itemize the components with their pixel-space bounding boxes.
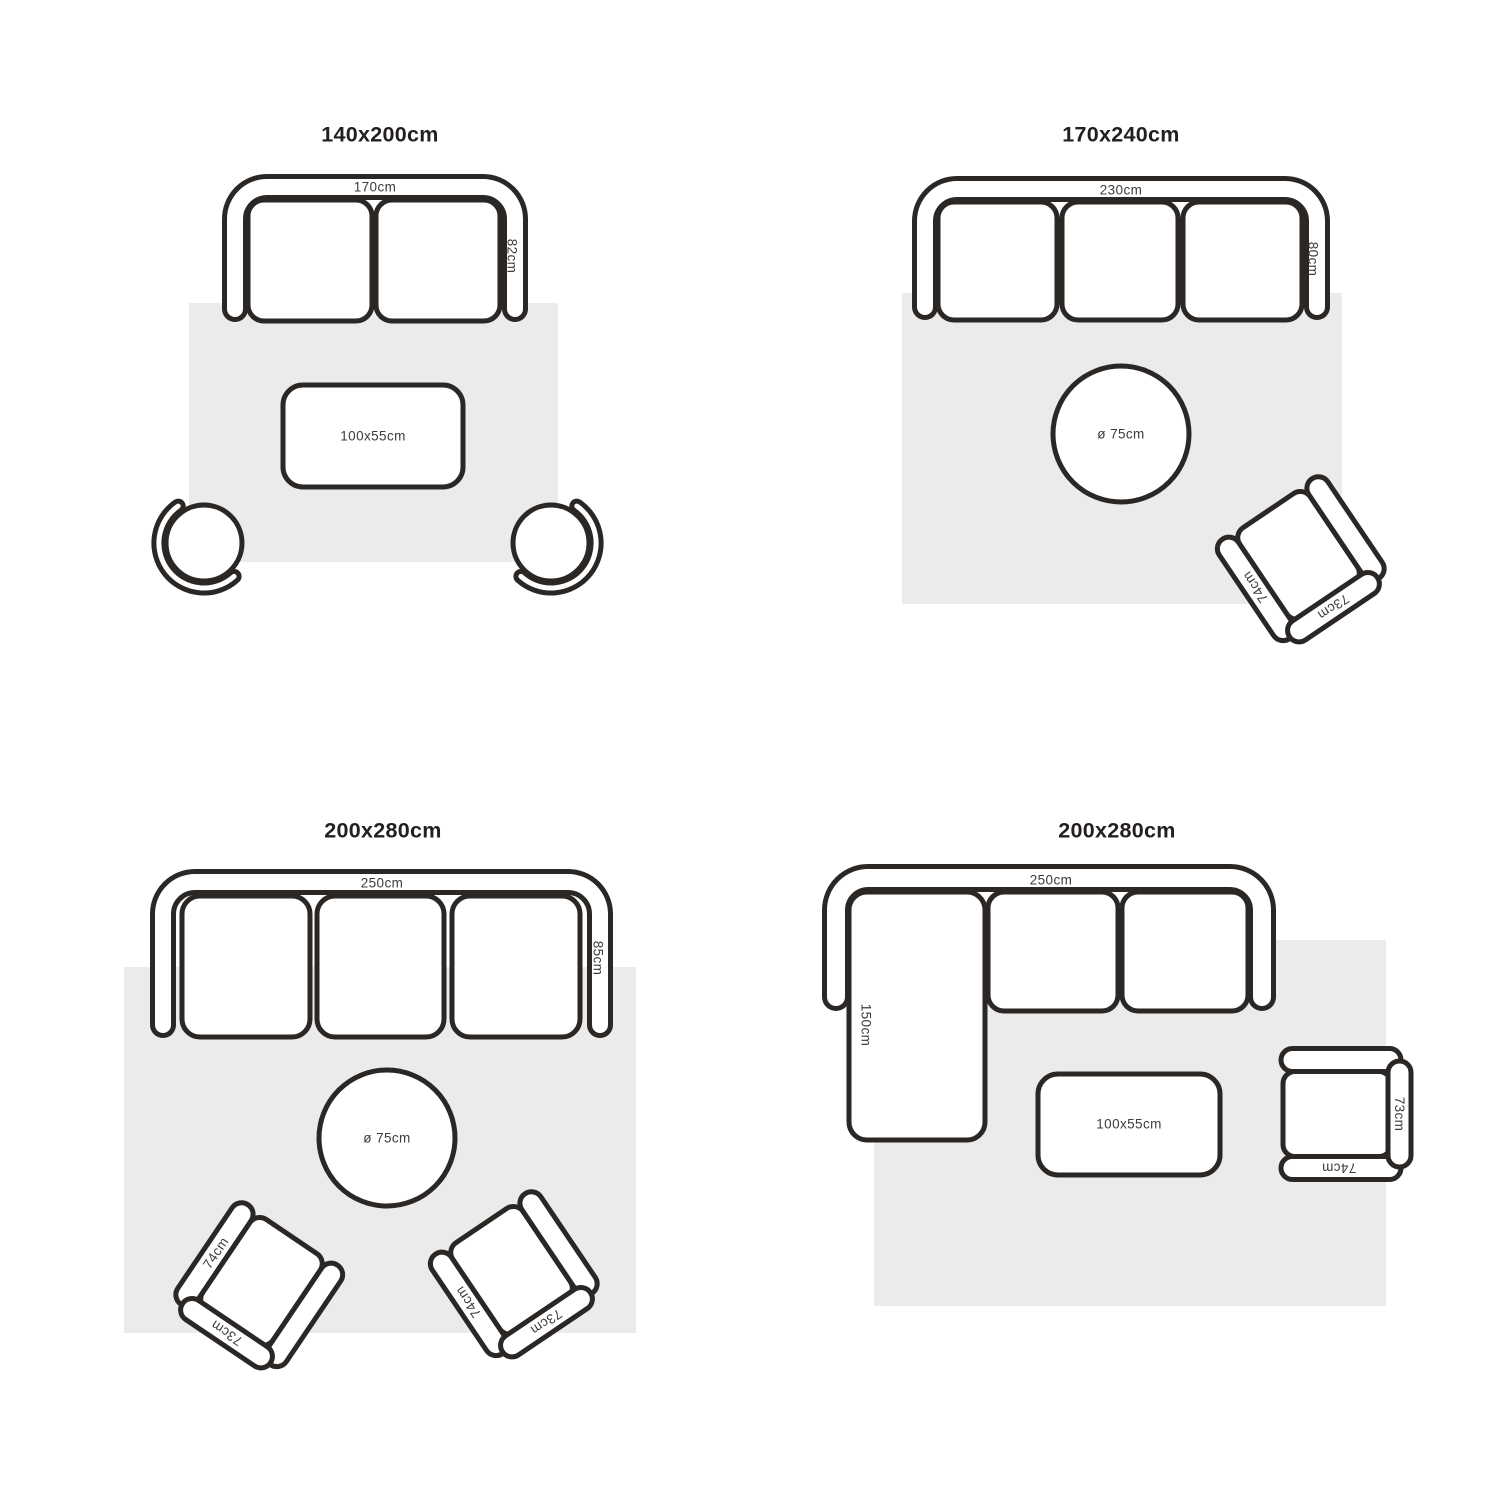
round-table: ø 75cm <box>319 1070 455 1206</box>
coffee-table: 100x55cm <box>283 385 463 487</box>
rug-size-guide-diagram: 140x200cm 170cm 82cm 100x55cm 170x240cm <box>0 0 1500 1500</box>
sofa-width-label: 230cm <box>1100 183 1143 198</box>
armchair-seat <box>1283 1072 1391 1157</box>
round-chair-right <box>513 505 596 588</box>
sofa-cushion <box>938 202 1057 320</box>
sofa-cushion <box>317 896 444 1037</box>
quadrant-top-left: 140x200cm 170cm 82cm 100x55cm <box>159 123 596 589</box>
quadrant-bottom-right: 200x280cm 250cm 150cm 100x55cm 74cm 73cm <box>836 819 1411 1306</box>
round-table-label: ø 75cm <box>363 1131 410 1146</box>
armchair-arm-label: 74cm <box>1322 1160 1357 1175</box>
sofa-cushion <box>248 200 372 321</box>
sofa-cushion <box>1183 202 1302 320</box>
two-seat-sofa: 170cm 82cm <box>235 180 519 321</box>
rug-size-title: 200x280cm <box>324 819 441 843</box>
coffee-table: 100x55cm <box>1038 1074 1220 1175</box>
sofa-cushion <box>182 896 310 1037</box>
rug-size-title: 170x240cm <box>1062 123 1179 147</box>
sofa-depth-label: 80cm <box>1305 242 1320 277</box>
sofa-depth-label: 82cm <box>504 239 519 274</box>
armchair: 74cm 73cm <box>1281 1049 1411 1180</box>
sofa-width-label: 250cm <box>1030 873 1073 888</box>
rug-size-title: 200x280cm <box>1058 819 1175 843</box>
sofa-cushion <box>1062 202 1178 320</box>
armchair-back-label: 73cm <box>1392 1097 1407 1132</box>
chair-seat <box>166 505 242 581</box>
armchair-arm-right <box>1281 1049 1401 1072</box>
sofa-width-label: 250cm <box>361 876 404 891</box>
quadrant-bottom-left: 200x280cm 250cm 85cm ø 75cm 74cm 73cm <box>124 819 636 1380</box>
three-seat-sofa: 250cm 85cm <box>163 876 605 1037</box>
sofa-cushion <box>988 892 1118 1011</box>
rug-size-guide: 140x200cm 170cm 82cm 100x55cm 170x240cm <box>0 0 1500 1500</box>
sofa-cushion <box>1122 892 1248 1011</box>
coffee-table-label: 100x55cm <box>340 429 406 444</box>
rug-size-title: 140x200cm <box>321 123 438 147</box>
sofa-cushion <box>376 200 500 321</box>
round-table: ø 75cm <box>1053 366 1189 502</box>
sofa-width-label: 170cm <box>354 180 397 195</box>
sofa-cushion <box>452 896 580 1037</box>
quadrant-top-right: 170x240cm 230cm 80cm ø 75cm 74cm 73cm <box>902 123 1394 654</box>
coffee-table-label: 100x55cm <box>1096 1117 1162 1132</box>
chair-seat <box>513 505 589 581</box>
round-chair-left <box>159 505 242 588</box>
three-seat-sofa: 230cm 80cm <box>925 183 1320 320</box>
sofa-depth-label: 85cm <box>590 941 605 976</box>
sofa-chaise-label: 150cm <box>858 1004 873 1047</box>
round-table-label: ø 75cm <box>1097 427 1144 442</box>
